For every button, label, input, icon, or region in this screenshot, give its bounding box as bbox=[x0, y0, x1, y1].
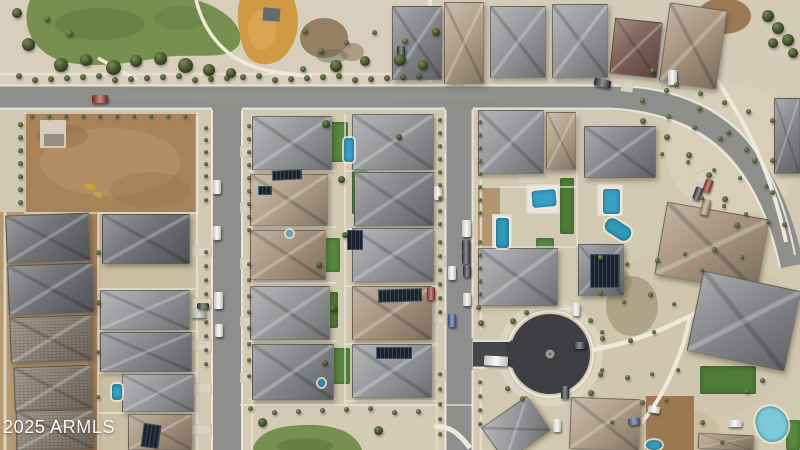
tree bbox=[438, 222, 442, 226]
house-roof bbox=[584, 126, 656, 178]
tree bbox=[18, 135, 23, 140]
car bbox=[561, 386, 569, 399]
tree bbox=[438, 387, 442, 391]
tree bbox=[478, 159, 482, 163]
tree bbox=[204, 278, 208, 282]
tree bbox=[112, 77, 118, 83]
tree bbox=[706, 172, 712, 178]
house-roof bbox=[13, 365, 92, 412]
tree bbox=[144, 75, 150, 81]
tree bbox=[655, 258, 660, 263]
tree bbox=[322, 120, 330, 128]
driveway bbox=[192, 246, 212, 257]
yard-wall bbox=[346, 400, 436, 402]
tree bbox=[438, 372, 442, 376]
house-roof bbox=[354, 172, 434, 226]
tree bbox=[183, 114, 187, 118]
tree bbox=[204, 162, 208, 166]
tree bbox=[18, 174, 23, 179]
tree bbox=[320, 408, 325, 413]
tree bbox=[336, 73, 342, 79]
house-roof bbox=[774, 98, 800, 174]
tree bbox=[372, 30, 377, 35]
tree bbox=[247, 215, 251, 219]
tree bbox=[96, 350, 100, 354]
driveway bbox=[192, 424, 212, 435]
tree bbox=[203, 64, 215, 76]
yard-wall bbox=[576, 112, 578, 246]
tree bbox=[204, 174, 208, 178]
tree bbox=[505, 386, 510, 391]
tree bbox=[740, 255, 744, 259]
tree bbox=[700, 420, 705, 425]
foundation-pad bbox=[44, 134, 64, 146]
house-roof bbox=[252, 344, 334, 400]
tree bbox=[12, 8, 22, 18]
tree bbox=[598, 290, 603, 295]
tree bbox=[66, 30, 73, 37]
tree bbox=[666, 114, 671, 119]
tree bbox=[272, 77, 278, 83]
house-roof bbox=[252, 116, 332, 170]
tree bbox=[154, 52, 167, 65]
tree bbox=[204, 292, 208, 296]
tree bbox=[610, 420, 614, 424]
tree bbox=[416, 409, 421, 414]
yard-wall bbox=[248, 340, 336, 342]
house-roof bbox=[352, 228, 434, 282]
tree bbox=[44, 16, 50, 22]
tree bbox=[204, 150, 208, 154]
yard-wall bbox=[248, 226, 336, 228]
tree bbox=[744, 147, 749, 152]
aerial-photo: 2025 ARMLS bbox=[0, 0, 800, 450]
tree bbox=[208, 76, 214, 82]
tree bbox=[478, 185, 482, 189]
tree bbox=[640, 400, 645, 405]
car bbox=[573, 342, 586, 349]
tree bbox=[204, 334, 208, 338]
play-structure bbox=[263, 7, 281, 21]
tree bbox=[344, 407, 349, 412]
tree bbox=[438, 196, 442, 200]
tree bbox=[106, 60, 121, 75]
tree bbox=[770, 190, 775, 195]
tree bbox=[478, 253, 482, 257]
tree bbox=[204, 348, 208, 352]
house-roof bbox=[352, 114, 434, 170]
tree bbox=[247, 137, 251, 141]
tree bbox=[247, 342, 251, 346]
tree bbox=[438, 183, 442, 187]
tree bbox=[438, 296, 442, 300]
tree bbox=[664, 88, 669, 93]
tree bbox=[622, 300, 626, 304]
tree bbox=[768, 38, 778, 48]
tree bbox=[588, 318, 593, 323]
tree bbox=[438, 157, 442, 161]
tree bbox=[520, 396, 525, 401]
tree bbox=[98, 114, 102, 118]
tree bbox=[166, 114, 170, 118]
tree bbox=[722, 204, 726, 208]
solar-panel bbox=[272, 169, 302, 181]
tree bbox=[478, 394, 482, 398]
tree bbox=[478, 279, 482, 283]
car bbox=[213, 180, 221, 194]
tree bbox=[664, 398, 668, 402]
tree bbox=[770, 158, 775, 163]
tree bbox=[316, 262, 322, 268]
tree bbox=[712, 247, 717, 252]
solar-panel bbox=[376, 347, 412, 359]
tree bbox=[384, 75, 390, 81]
tree bbox=[438, 144, 442, 148]
tree bbox=[204, 126, 208, 130]
tree bbox=[96, 73, 102, 79]
pool bbox=[286, 230, 293, 237]
tree bbox=[438, 240, 442, 244]
tree bbox=[698, 91, 703, 96]
tree bbox=[438, 209, 442, 213]
tree bbox=[722, 100, 727, 105]
tree bbox=[81, 114, 85, 118]
pool bbox=[318, 379, 325, 387]
tree bbox=[394, 54, 406, 66]
driveway bbox=[433, 313, 446, 324]
house-roof bbox=[250, 230, 326, 280]
driveway bbox=[192, 383, 212, 394]
house-roof bbox=[250, 174, 328, 226]
tree bbox=[247, 278, 251, 282]
tree bbox=[788, 48, 798, 58]
tree bbox=[204, 186, 208, 190]
tree bbox=[18, 148, 23, 153]
tree bbox=[438, 131, 442, 135]
tree bbox=[302, 28, 308, 34]
tree bbox=[240, 74, 246, 80]
car bbox=[214, 292, 223, 309]
tree bbox=[692, 125, 697, 130]
tree bbox=[247, 374, 251, 378]
tree bbox=[18, 200, 23, 205]
tree bbox=[744, 212, 748, 216]
tree bbox=[745, 390, 749, 394]
tree bbox=[438, 170, 442, 174]
house-roof bbox=[100, 332, 192, 372]
tree bbox=[478, 198, 482, 202]
tree bbox=[18, 161, 23, 166]
tree bbox=[247, 202, 251, 206]
tree bbox=[204, 306, 208, 310]
tree bbox=[330, 60, 342, 72]
tree bbox=[734, 222, 740, 228]
tree bbox=[478, 422, 482, 426]
tree bbox=[746, 109, 751, 114]
solar-panel bbox=[378, 288, 422, 303]
tree bbox=[247, 262, 251, 266]
tree bbox=[598, 372, 603, 377]
tree bbox=[478, 133, 482, 137]
yard-wall bbox=[24, 112, 26, 212]
tree bbox=[400, 74, 406, 80]
tree bbox=[204, 264, 208, 268]
tree bbox=[54, 58, 68, 72]
tree bbox=[625, 262, 629, 266]
tree bbox=[247, 310, 251, 314]
house-roof bbox=[5, 213, 91, 264]
car bbox=[215, 324, 223, 337]
tree bbox=[48, 76, 54, 82]
tree bbox=[782, 222, 787, 227]
tree bbox=[478, 172, 482, 176]
house-roof bbox=[250, 286, 330, 340]
tree bbox=[674, 82, 679, 87]
tree bbox=[204, 198, 208, 202]
pool bbox=[646, 440, 662, 450]
tree bbox=[764, 184, 768, 188]
tree bbox=[128, 76, 134, 82]
house-roof bbox=[490, 6, 546, 78]
tree bbox=[600, 336, 605, 341]
car bbox=[448, 266, 456, 280]
tree bbox=[296, 409, 301, 414]
tree bbox=[176, 73, 182, 79]
tree bbox=[22, 38, 35, 51]
tree bbox=[338, 176, 345, 183]
solar-panel bbox=[347, 230, 363, 250]
tree bbox=[247, 294, 251, 298]
tree bbox=[304, 75, 310, 81]
tree bbox=[600, 330, 604, 334]
tree bbox=[760, 378, 765, 383]
tree bbox=[478, 380, 482, 384]
tree bbox=[18, 122, 23, 127]
tree bbox=[30, 114, 34, 118]
tree bbox=[247, 228, 251, 232]
tree bbox=[726, 130, 731, 135]
tree bbox=[368, 76, 374, 82]
tree bbox=[625, 375, 630, 380]
car bbox=[213, 226, 221, 240]
tree bbox=[700, 196, 704, 200]
tree bbox=[96, 395, 100, 399]
tree bbox=[672, 302, 676, 306]
tree bbox=[402, 38, 408, 44]
tree bbox=[686, 160, 690, 164]
car bbox=[191, 311, 206, 318]
tree bbox=[478, 240, 482, 244]
lawn bbox=[332, 348, 350, 384]
solar-panel bbox=[590, 254, 620, 288]
tree bbox=[438, 417, 442, 421]
tree bbox=[738, 176, 742, 180]
tree bbox=[80, 74, 86, 80]
house-roof bbox=[100, 290, 190, 330]
car bbox=[463, 293, 471, 306]
tree bbox=[640, 98, 645, 103]
house-roof bbox=[478, 248, 558, 306]
tree bbox=[478, 146, 482, 150]
tree bbox=[700, 268, 704, 272]
tree bbox=[664, 134, 670, 140]
tree bbox=[330, 305, 337, 312]
tree bbox=[416, 73, 422, 79]
tree bbox=[683, 252, 687, 256]
tree bbox=[368, 406, 373, 411]
tree bbox=[476, 305, 481, 310]
tree bbox=[272, 410, 277, 415]
tree bbox=[770, 118, 775, 123]
tree bbox=[247, 326, 251, 330]
tree bbox=[322, 360, 328, 366]
tree bbox=[478, 320, 484, 326]
house-roof bbox=[7, 263, 95, 316]
tree bbox=[650, 372, 654, 376]
tree bbox=[588, 390, 594, 396]
tree bbox=[64, 114, 68, 118]
car bbox=[463, 265, 471, 277]
tree bbox=[478, 120, 482, 124]
tree bbox=[342, 232, 348, 238]
tree bbox=[160, 74, 166, 80]
house-roof bbox=[122, 374, 194, 412]
tree bbox=[96, 300, 101, 305]
tree bbox=[640, 118, 646, 124]
tree bbox=[432, 28, 440, 36]
house-roof bbox=[478, 110, 544, 174]
car bbox=[92, 95, 108, 103]
house-roof bbox=[444, 2, 484, 84]
pool bbox=[344, 138, 354, 162]
pool bbox=[496, 218, 509, 248]
tree bbox=[438, 282, 442, 286]
tree bbox=[226, 68, 236, 78]
tree bbox=[772, 22, 784, 34]
tree bbox=[247, 163, 251, 167]
tree bbox=[720, 440, 724, 444]
tree bbox=[256, 73, 262, 79]
solar-panel bbox=[140, 423, 161, 449]
yard-wall bbox=[248, 282, 336, 284]
tree bbox=[96, 250, 101, 255]
tree bbox=[438, 268, 442, 272]
house-roof bbox=[552, 4, 608, 78]
truck bbox=[484, 355, 508, 366]
tree bbox=[300, 66, 306, 72]
solar-panel bbox=[258, 186, 272, 195]
tree bbox=[660, 152, 664, 156]
tree bbox=[648, 292, 653, 297]
tree bbox=[80, 54, 92, 66]
car bbox=[462, 252, 470, 264]
tree bbox=[686, 152, 692, 158]
tree bbox=[392, 410, 397, 415]
driveway bbox=[192, 340, 212, 351]
tree bbox=[130, 55, 142, 67]
tree bbox=[652, 330, 656, 334]
tree bbox=[524, 310, 529, 315]
tree bbox=[676, 368, 680, 372]
tree bbox=[115, 114, 119, 118]
tree bbox=[248, 406, 253, 411]
tree bbox=[478, 408, 482, 412]
tree bbox=[204, 362, 208, 366]
tree bbox=[478, 211, 482, 215]
yard-wall bbox=[476, 186, 576, 188]
tree bbox=[697, 106, 702, 111]
tree bbox=[204, 320, 208, 324]
pool bbox=[112, 384, 122, 400]
tree bbox=[438, 432, 442, 436]
tree bbox=[478, 266, 482, 270]
car bbox=[448, 314, 456, 327]
tree bbox=[258, 418, 267, 427]
tree bbox=[318, 48, 324, 54]
tree bbox=[204, 250, 208, 254]
tree bbox=[650, 68, 655, 73]
tree bbox=[18, 187, 23, 192]
house-roof bbox=[9, 315, 93, 364]
tree bbox=[478, 292, 482, 296]
tree bbox=[64, 75, 70, 81]
house-roof bbox=[546, 112, 576, 170]
tree bbox=[360, 56, 370, 66]
car bbox=[553, 419, 561, 432]
tree bbox=[320, 74, 326, 80]
tree bbox=[247, 124, 251, 128]
tree bbox=[149, 114, 153, 118]
construction-equipment bbox=[86, 184, 95, 190]
tree bbox=[204, 138, 208, 142]
tree bbox=[178, 58, 193, 73]
tree bbox=[247, 189, 251, 193]
tree bbox=[288, 76, 294, 82]
tree bbox=[374, 426, 383, 435]
car bbox=[728, 420, 742, 427]
tree bbox=[762, 10, 774, 22]
car bbox=[462, 220, 471, 237]
tree bbox=[247, 176, 251, 180]
tree bbox=[418, 60, 428, 70]
tree bbox=[438, 254, 442, 258]
tree bbox=[247, 150, 251, 154]
tree bbox=[722, 196, 728, 202]
tree bbox=[782, 34, 794, 46]
car bbox=[462, 240, 470, 252]
tree bbox=[718, 136, 723, 141]
tree bbox=[438, 310, 442, 314]
copyright-watermark: 2025 ARMLS bbox=[3, 417, 115, 438]
tree bbox=[598, 255, 603, 260]
tree bbox=[510, 318, 516, 324]
tree bbox=[16, 73, 22, 79]
tree bbox=[32, 77, 38, 83]
car bbox=[572, 303, 580, 316]
house-roof bbox=[392, 6, 442, 80]
tree bbox=[352, 77, 358, 83]
yard-wall bbox=[196, 112, 198, 212]
tree bbox=[766, 220, 770, 224]
tree bbox=[344, 40, 349, 45]
pool bbox=[603, 189, 620, 214]
tree bbox=[438, 402, 442, 406]
car bbox=[427, 287, 435, 300]
tree bbox=[712, 168, 716, 172]
tree bbox=[247, 358, 251, 362]
house-roof bbox=[698, 433, 755, 450]
tree bbox=[628, 338, 633, 343]
